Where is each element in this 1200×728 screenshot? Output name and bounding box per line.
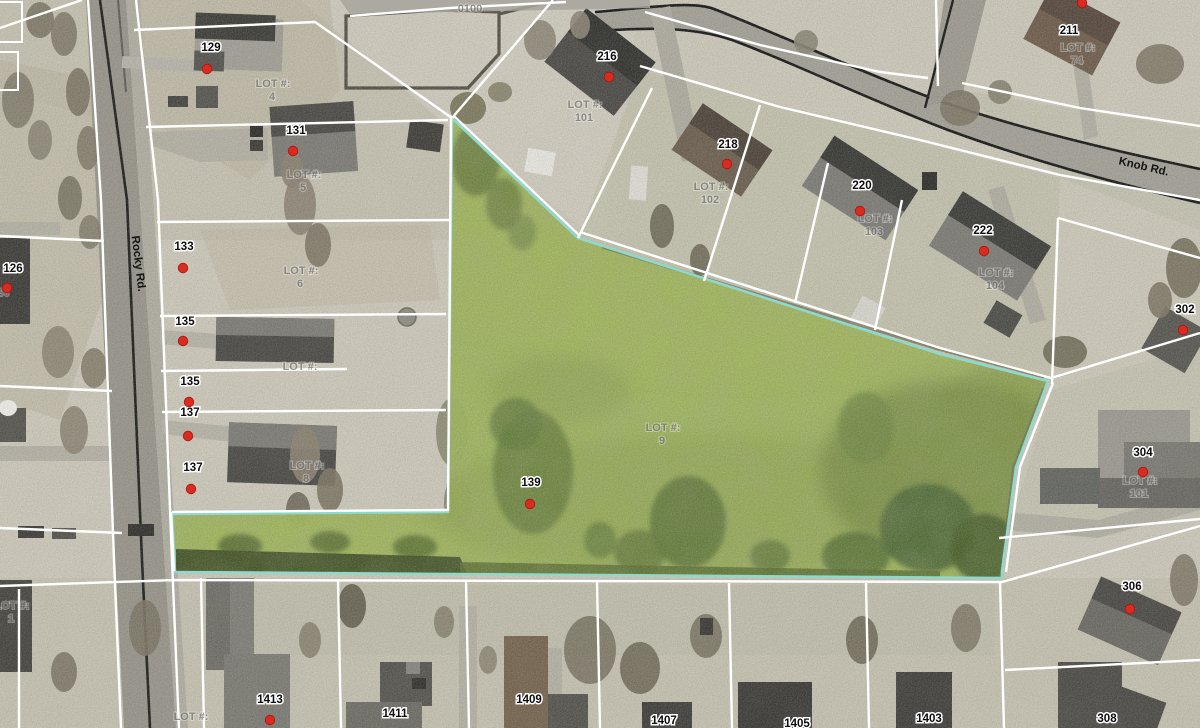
svg-text:218: 218	[718, 139, 738, 151]
svg-text:304: 304	[1133, 447, 1153, 459]
svg-text:133: 133	[174, 241, 193, 253]
svg-text:1403: 1403	[916, 713, 942, 725]
svg-text:302: 302	[1175, 304, 1194, 316]
svg-text:211: 211	[1060, 25, 1079, 37]
svg-text:216: 216	[597, 51, 616, 63]
svg-text:137: 137	[183, 462, 202, 474]
svg-text:LOT #:: LOT #:	[283, 361, 318, 373]
svg-text:1413: 1413	[257, 694, 283, 706]
svg-text:126: 126	[3, 263, 22, 275]
svg-text:222: 222	[973, 225, 992, 237]
svg-text:306: 306	[1122, 581, 1141, 593]
svg-text:1411: 1411	[383, 708, 409, 720]
svg-text:139: 139	[521, 477, 540, 489]
svg-text:129: 129	[201, 42, 220, 54]
svg-text:135: 135	[180, 376, 200, 388]
svg-text:308: 308	[1097, 713, 1117, 725]
svg-text:1409: 1409	[516, 694, 542, 706]
svg-text:0100: 0100	[458, 3, 482, 15]
svg-text:131: 131	[286, 125, 306, 137]
svg-text:1407: 1407	[651, 715, 677, 727]
svg-text:137: 137	[180, 407, 199, 419]
svg-text:LOT #:: LOT #:	[174, 711, 209, 723]
svg-text:220: 220	[852, 180, 871, 192]
svg-text:135: 135	[175, 316, 195, 328]
svg-text:1405: 1405	[784, 718, 810, 728]
